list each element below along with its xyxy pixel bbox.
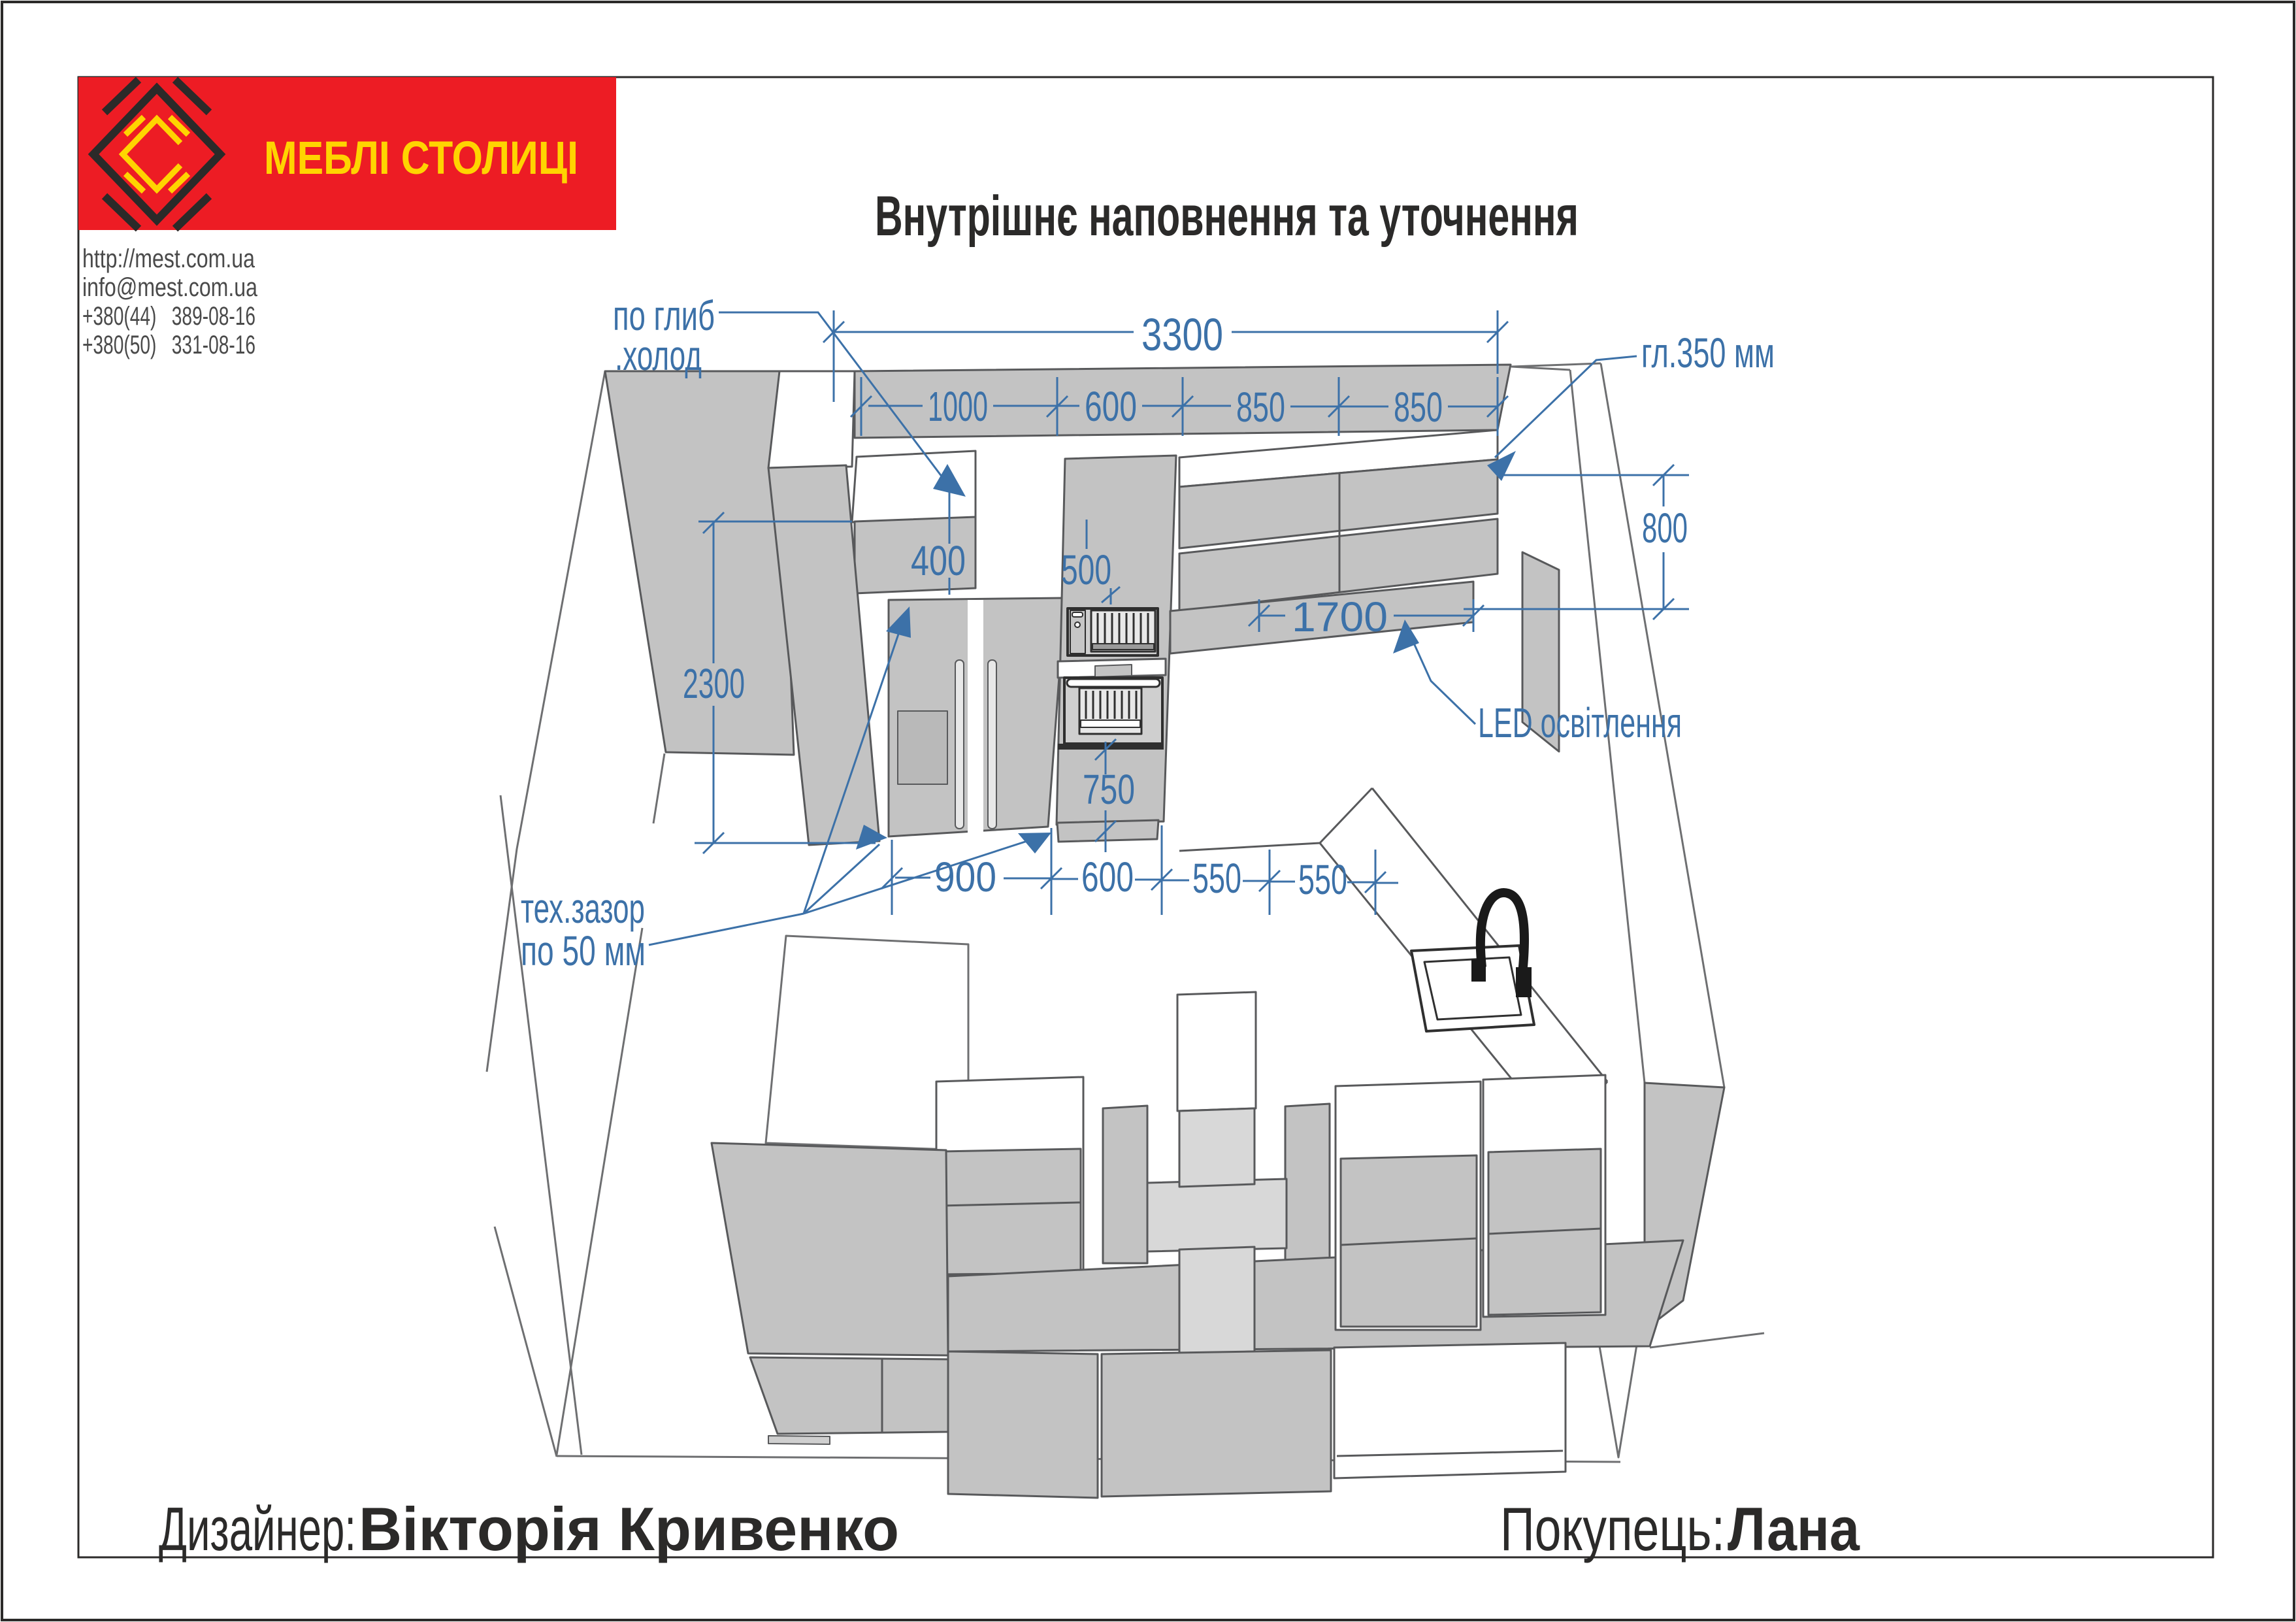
svg-text:тех.зазор: тех.зазор <box>521 885 645 932</box>
svg-text:550: 550 <box>1298 856 1347 903</box>
svg-text:550: 550 <box>1192 855 1241 902</box>
svg-text:500: 500 <box>1061 546 1111 593</box>
svg-text:info@mest.com.ua: info@mest.com.ua <box>82 273 258 302</box>
svg-text:2300: 2300 <box>683 660 745 707</box>
svg-text:+380(50) 331-08-16: +380(50) 331-08-16 <box>82 331 255 359</box>
svg-text:по 50 мм: по 50 мм <box>521 927 646 974</box>
svg-text:LED освітлення: LED освітлення <box>1478 699 1682 746</box>
svg-text:МЕБЛІ СТОЛИЦІ: МЕБЛІ СТОЛИЦІ <box>264 133 578 184</box>
svg-text:+380(44) 389-08-16: +380(44) 389-08-16 <box>82 302 255 331</box>
svg-text:800: 800 <box>1642 505 1688 552</box>
svg-text:1700: 1700 <box>1292 593 1388 640</box>
svg-text:Покупець:: Покупець: <box>1500 1495 1725 1563</box>
svg-text:http://mest.com.ua: http://mest.com.ua <box>82 244 255 273</box>
svg-text:900: 900 <box>934 853 996 901</box>
svg-text:Вікторія Кривенко: Вікторія Кривенко <box>359 1495 899 1563</box>
svg-text:Лана: Лана <box>1728 1495 1860 1563</box>
svg-text:Внутрішнє наповнення та уточне: Внутрішнє наповнення та уточнення <box>875 185 1579 248</box>
svg-text:600: 600 <box>1085 383 1137 430</box>
svg-text:1000: 1000 <box>928 383 988 430</box>
svg-text:600: 600 <box>1081 853 1134 901</box>
svg-text:.холод: .холод <box>615 332 702 379</box>
svg-text:гл.350 мм: гл.350 мм <box>1641 329 1775 376</box>
svg-text:850: 850 <box>1236 384 1285 431</box>
svg-text:850: 850 <box>1394 384 1443 431</box>
svg-text:3300: 3300 <box>1141 309 1223 360</box>
svg-text:750: 750 <box>1083 766 1135 813</box>
svg-text:Дизайнер:: Дизайнер: <box>159 1495 356 1563</box>
svg-text:400: 400 <box>911 537 966 584</box>
